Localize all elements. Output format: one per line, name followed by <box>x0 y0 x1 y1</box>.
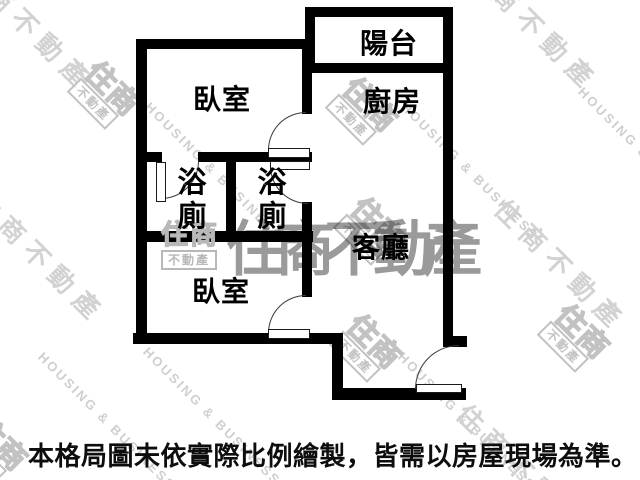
wall-segment <box>137 39 312 49</box>
door-swing-arc <box>268 112 306 150</box>
wall-segment <box>136 39 147 344</box>
room-label-balcony: 陽台 <box>360 30 418 58</box>
room-label-kitchen: 廚房 <box>363 88 421 116</box>
wall-segment <box>302 39 312 114</box>
brand-logo-box: 不動產 <box>161 250 217 270</box>
door-leaf <box>268 329 310 339</box>
room-label-bedroom-1: 臥室 <box>193 86 251 114</box>
wall-segment <box>136 152 162 162</box>
room-label-bedroom-2: 臥室 <box>192 278 250 306</box>
door-leaf <box>156 162 166 202</box>
room-label-living-room: 客廳 <box>352 234 410 262</box>
door-leaf <box>268 148 310 158</box>
floorplan-image: 住商不動產住商不動產住商不動產住商不動產住商不動產HOUSING & BUSIN… <box>0 0 640 480</box>
room-label-bathroom-2: 浴廁 <box>255 166 289 234</box>
wall-segment <box>305 7 453 17</box>
door-swing-arc <box>415 345 459 389</box>
room-label-bathroom-1: 浴廁 <box>175 166 209 234</box>
wall-segment <box>305 63 453 73</box>
door-swing-arc <box>268 295 306 333</box>
wall-segment <box>443 7 453 340</box>
disclaimer-caption: 本格局圖未依實際比例繪製，皆需以房屋現場為準。 <box>28 436 638 473</box>
door-leaf <box>416 384 462 393</box>
wall-segment <box>133 333 343 344</box>
